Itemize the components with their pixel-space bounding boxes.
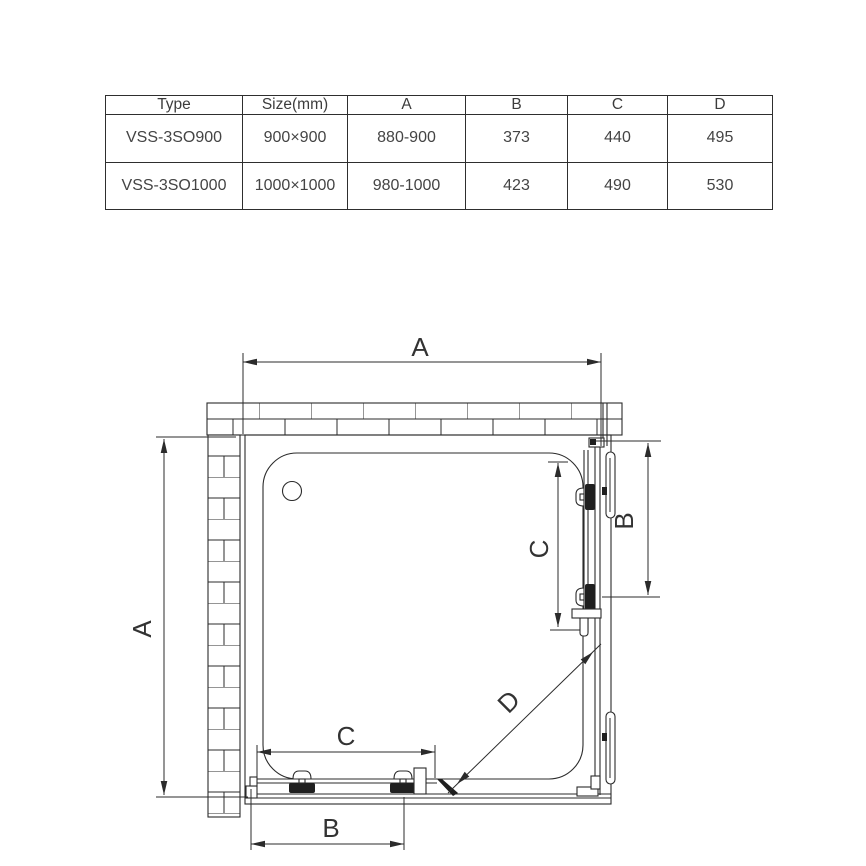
door-stopper: [414, 768, 426, 794]
dim-label-door-right: C: [524, 540, 554, 559]
technical-drawing: A A C B C B: [0, 0, 866, 866]
roller-icon: [576, 484, 595, 510]
roller-icon: [576, 584, 595, 610]
handle-icon: [602, 712, 615, 784]
roller-icon: [390, 771, 416, 793]
roller-bracket: [572, 609, 601, 618]
handle-icon: [602, 452, 615, 518]
shower-tray: [245, 435, 611, 804]
dim-label-door-bottom: C: [337, 721, 356, 751]
dim-label-diagonal: D: [491, 684, 525, 718]
dim-label-height-left: A: [127, 620, 157, 638]
bottom-door-assembly: [246, 768, 611, 798]
shower-enclosure-spec-sheet: Type Size(mm) A B C D VSS-3SO900 900×900…: [0, 0, 866, 866]
drain-circle: [283, 482, 302, 501]
roller-icon: [289, 771, 315, 793]
wall-hatching: [207, 403, 622, 817]
dim-label-width-top: A: [411, 332, 429, 362]
dim-label-panel-bottom: B: [322, 813, 339, 843]
right-door-assembly: [572, 403, 615, 796]
dim-label-panel-right: B: [609, 512, 639, 529]
